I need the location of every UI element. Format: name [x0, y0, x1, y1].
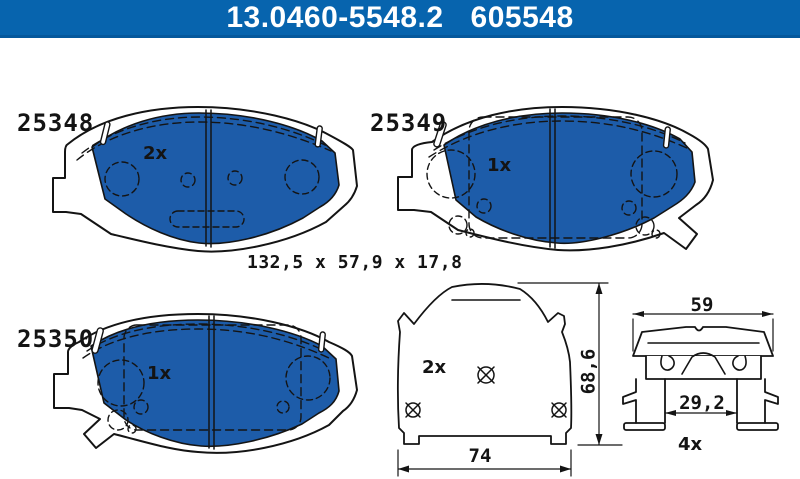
part-label-pad1: 25348	[17, 111, 94, 135]
pad-dimensions-note: 132,5 x 57,9 x 17,8	[247, 254, 462, 272]
dimension-height-backplate: 68,6	[580, 340, 599, 404]
part-label-pad3: 25350	[17, 327, 94, 351]
catalog-number: 13.0460-5548.2	[226, 1, 443, 35]
part-label-pad2: 25349	[370, 111, 447, 135]
clip-spring-plate	[633, 327, 773, 356]
dimension-width-backplate: 74	[455, 447, 505, 466]
dimension-inner-clip: 29,2	[674, 394, 730, 413]
header-bar: 13.0460-5548.2 605548	[0, 0, 800, 38]
dimension-width-clip: 59	[683, 296, 721, 315]
order-number: 605548	[471, 1, 574, 35]
quantity-pad3: 1x	[147, 365, 171, 383]
quantity-clip: 4x	[678, 436, 702, 454]
brake-pad-technical-datasheet: 13.0460-5548.2 605548 25348 2x	[0, 0, 800, 479]
quantity-pad1: 2x	[143, 145, 167, 163]
quantity-backplate: 2x	[422, 359, 446, 377]
quantity-pad2: 1x	[487, 157, 511, 175]
